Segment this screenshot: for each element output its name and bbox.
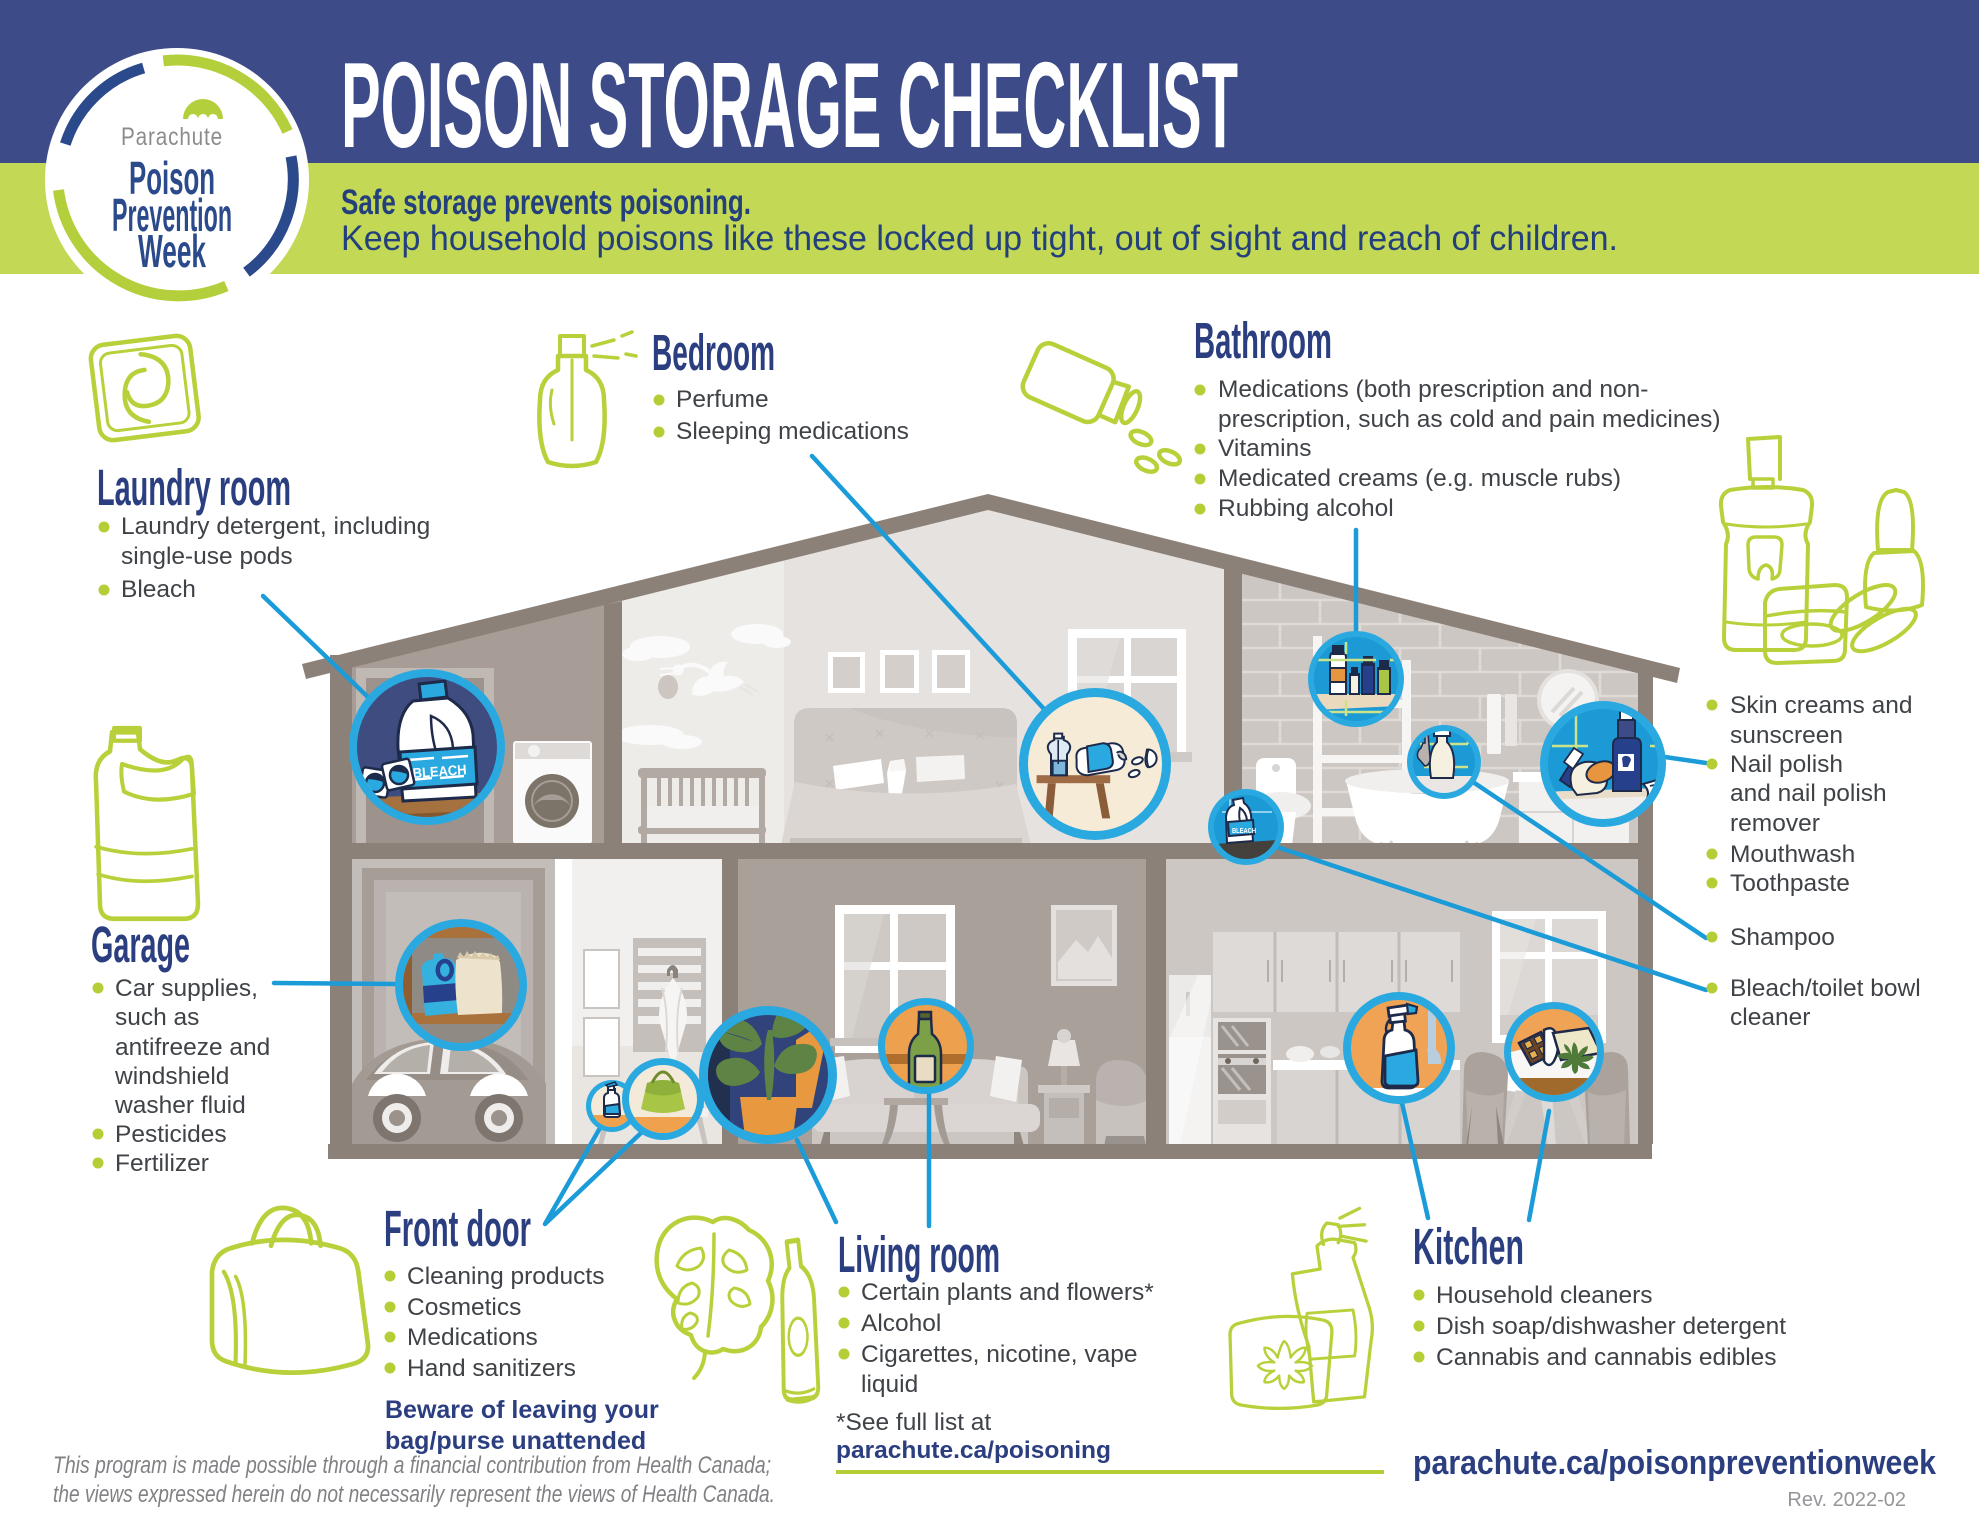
svg-text:Toothpaste: Toothpaste <box>1730 870 1850 897</box>
svg-text:and nail polish: and nail polish <box>1730 780 1887 807</box>
svg-text:such as: such as <box>115 1004 199 1031</box>
svg-text:BLEACH: BLEACH <box>1232 828 1256 835</box>
svg-text:Kitchen: Kitchen <box>1413 1218 1524 1275</box>
svg-text:POISON STORAGE CHECKLIST: POISON STORAGE CHECKLIST <box>341 37 1238 173</box>
svg-text:Laundry room: Laundry room <box>97 459 291 516</box>
svg-text:Rubbing alcohol: Rubbing alcohol <box>1218 495 1394 522</box>
svg-text:prescription, such as cold and: prescription, such as cold and pain medi… <box>1218 406 1721 433</box>
svg-text:Mouthwash: Mouthwash <box>1730 841 1855 868</box>
svg-text:Medications (both prescription: Medications (both prescription and non- <box>1218 376 1648 403</box>
svg-text:Living room: Living room <box>838 1226 1000 1283</box>
svg-text:Fertilizer: Fertilizer <box>115 1150 209 1177</box>
svg-text:Cannabis and cannabis edibles: Cannabis and cannabis edibles <box>1436 1344 1777 1371</box>
svg-text:Medicated creams (e.g. muscle: Medicated creams (e.g. muscle rubs) <box>1218 465 1621 492</box>
svg-text:Front door: Front door <box>384 1200 531 1257</box>
svg-text:Pesticides: Pesticides <box>115 1121 227 1148</box>
svg-text:windshield: windshield <box>114 1063 229 1090</box>
svg-text:cleaner: cleaner <box>1730 1004 1810 1031</box>
svg-text:Sleeping medications: Sleeping medications <box>676 418 909 445</box>
svg-text:Alcohol: Alcohol <box>861 1310 941 1337</box>
svg-text:Perfume: Perfume <box>676 386 769 413</box>
svg-text:Hand sanitizers: Hand sanitizers <box>407 1355 576 1382</box>
svg-text:Beware of leaving your: Beware of leaving your <box>385 1396 659 1424</box>
svg-text:Vitamins: Vitamins <box>1218 435 1312 462</box>
svg-text:antifreeze and: antifreeze and <box>115 1034 270 1061</box>
svg-text:Week: Week <box>138 225 206 277</box>
svg-text:Cigarettes, nicotine, vape: Cigarettes, nicotine, vape <box>861 1341 1137 1368</box>
svg-text:Laundry detergent, including: Laundry detergent, including <box>121 513 430 540</box>
svg-text:bag/purse unattended: bag/purse unattended <box>385 1427 646 1455</box>
svg-text:Certain plants and flowers*: Certain plants and flowers* <box>861 1279 1154 1306</box>
svg-text:Nail polish: Nail polish <box>1730 751 1843 778</box>
svg-text:Bedroom: Bedroom <box>652 324 775 381</box>
svg-text:Bleach: Bleach <box>121 576 196 603</box>
svg-text:Parachute: Parachute <box>121 123 223 151</box>
svg-text:*See full list at: *See full list at <box>836 1409 991 1436</box>
svg-text:This program is made possible: This program is made possible through a … <box>53 1452 771 1479</box>
svg-text:Household cleaners: Household cleaners <box>1436 1282 1653 1309</box>
svg-text:washer fluid: washer fluid <box>114 1092 246 1119</box>
svg-text:parachute.ca/poisonpreventionw: parachute.ca/poisonpreventionweek <box>1413 1444 1936 1482</box>
svg-text:Medications: Medications <box>407 1324 538 1351</box>
svg-text:Rev. 2022-02: Rev. 2022-02 <box>1787 1489 1906 1511</box>
svg-text:Shampoo: Shampoo <box>1730 924 1835 951</box>
svg-text:Bathroom: Bathroom <box>1194 312 1332 369</box>
svg-text:the views expressed herein do: the views expressed herein do not necess… <box>53 1481 775 1508</box>
svg-text:sunscreen: sunscreen <box>1730 722 1843 749</box>
svg-text:Skin creams and: Skin creams and <box>1730 692 1912 719</box>
svg-text:parachute.ca/poisoning: parachute.ca/poisoning <box>836 1437 1111 1464</box>
svg-text:Cleaning products: Cleaning products <box>407 1263 604 1290</box>
svg-text:liquid: liquid <box>861 1371 918 1398</box>
svg-text:Dish soap/dishwasher detergent: Dish soap/dishwasher detergent <box>1436 1313 1786 1340</box>
svg-text:single-use pods: single-use pods <box>121 543 293 570</box>
svg-text:Keep household poisons like th: Keep household poisons like these locked… <box>341 219 1618 258</box>
svg-text:Car supplies,: Car supplies, <box>115 975 258 1002</box>
svg-text:Safe storage prevents poisonin: Safe storage prevents poisoning. <box>341 183 751 222</box>
svg-text:Bleach/toilet bowl: Bleach/toilet bowl <box>1730 975 1921 1002</box>
svg-text:remover: remover <box>1730 810 1820 837</box>
svg-text:Garage: Garage <box>91 916 190 973</box>
svg-text:Cosmetics: Cosmetics <box>407 1294 521 1321</box>
